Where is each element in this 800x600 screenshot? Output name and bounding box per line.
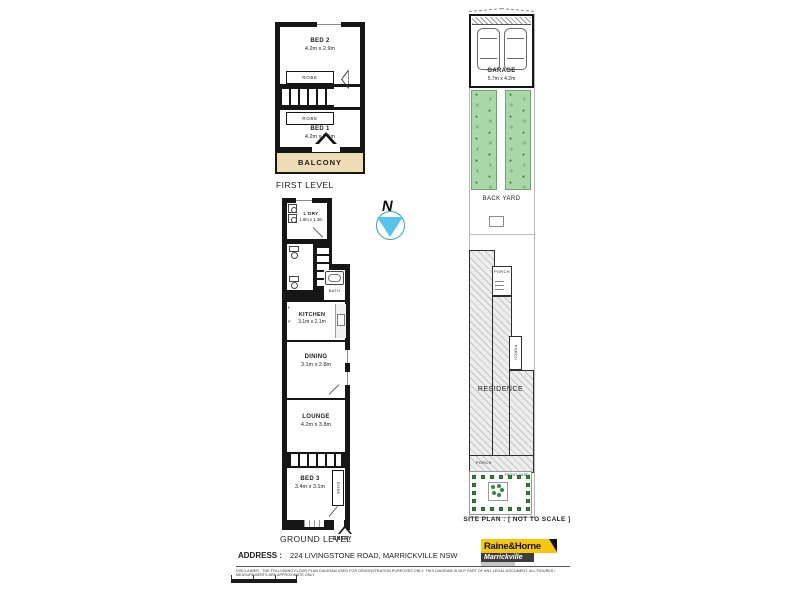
logo-corner-icon — [549, 539, 557, 552]
site-plan-caption: SITE PLAN : [ NOT TO SCALE ] — [452, 516, 582, 523]
lounge-room: LOUNGE 4.2m x 3.8m — [287, 400, 345, 452]
bed2-dims: 4.2m x 2.9m — [275, 46, 365, 53]
fridge-label: F — [288, 306, 291, 310]
dining-room: DINING 3.1m x 2.8m — [287, 342, 345, 398]
garden-bed-icon — [499, 507, 503, 511]
plant-icon: ● — [488, 131, 491, 136]
plant-icon: ✱ — [522, 98, 527, 104]
backyard-strip-right: ●✱✱●●✱✱●●✱✱●●✱✱●●✱ — [505, 90, 531, 190]
balcony-label: BALCONY — [298, 158, 342, 167]
plant-icon: ✱ — [475, 104, 480, 110]
plant-icon: ● — [522, 109, 525, 114]
ground-level-plan: L'DRY 1.8m x 1.3m BATH F P KITCHEN 3.1m … — [282, 198, 350, 530]
plant-icon: ✱ — [488, 98, 493, 104]
wc-room — [287, 244, 313, 290]
robe-top: ROBE — [286, 71, 334, 84]
garden-bed-icon — [526, 491, 530, 495]
plant-icon: ● — [475, 137, 478, 142]
residence-label: RESIDENCE — [469, 386, 532, 393]
bed3-dims: 3.4m x 3.1m — [287, 484, 333, 491]
laundry-label: L'DRY 1.8m x 1.3m — [295, 211, 327, 222]
plant-icon: ● — [475, 181, 478, 186]
window-icon — [296, 198, 312, 203]
lounge-label: LOUNGE 4.2m x 3.8m — [287, 414, 345, 429]
bed3-robe: ROBE — [332, 470, 344, 506]
plant-icon: ● — [509, 115, 512, 120]
garage-dims: 5.7m x 4.2m — [471, 76, 532, 83]
bed3-label: BED 3 3.4m x 3.1m — [287, 476, 333, 491]
plant-icon: ● — [509, 137, 512, 142]
plant-icon: ● — [509, 159, 512, 164]
plant-icon: ● — [475, 159, 478, 164]
dining-name: DINING — [287, 354, 345, 362]
address-row: ADDRESS : 224 LIVINGSTONE ROAD, MARRICKV… — [238, 551, 457, 560]
front-yard: FRONT YARD — [469, 471, 532, 515]
logo-office-text: Marrickville — [481, 554, 523, 561]
plan-cutout — [332, 198, 350, 264]
kitchen-label: KITCHEN 3.1m x 2.1m — [287, 312, 337, 326]
door-icon — [329, 506, 338, 517]
scale-bar — [231, 574, 297, 584]
backyard-strip-left: ●✱✱●●✱✱●●✱✱●●✱✱●●✱ — [471, 90, 497, 190]
roller-door-icon — [472, 17, 531, 25]
front-porch-label: PORCH — [476, 461, 492, 465]
plant-icon: ✱ — [509, 170, 514, 176]
plant-icon: ✱ — [522, 164, 527, 170]
window-icon — [317, 22, 341, 27]
plant-icon: ● — [475, 93, 478, 98]
garden-bed-icon — [472, 491, 476, 495]
plant-icon: ✱ — [475, 170, 480, 176]
laundry-dims: 1.8m x 1.3m — [295, 217, 327, 222]
stairs-ground-level-lower — [289, 452, 341, 468]
garden-pot — [488, 482, 508, 501]
garden-bed-icon — [490, 475, 494, 479]
logo-office-bar: Marrickville — [481, 553, 534, 562]
compass: N — [374, 199, 408, 243]
door-icon — [329, 384, 340, 395]
balcony: BALCONY — [275, 152, 365, 174]
bed3-name: BED 3 — [287, 476, 333, 484]
garden-bed-icon — [508, 507, 512, 511]
clothesline-icon — [489, 216, 504, 227]
first-level-caption: FIRST LEVEL — [276, 180, 334, 190]
plant-icon: ✱ — [488, 120, 493, 126]
garage-roof-line — [501, 8, 534, 12]
shrub-icon — [500, 488, 504, 492]
fireplace-icon — [304, 520, 324, 527]
laundry-room: L'DRY 1.8m x 1.3m — [287, 203, 327, 239]
plant-icon: ● — [488, 109, 491, 114]
bed3-room: BED 3 3.4m x 3.1m ROBE — [287, 468, 345, 520]
garden-bed-icon — [472, 499, 476, 503]
dining-dims: 3.1m x 2.8m — [287, 362, 345, 369]
agency-logo: Raine&Horne Marrickville — [481, 539, 557, 566]
garden-bed-icon — [526, 475, 530, 479]
residence-body — [509, 370, 534, 457]
plant-icon: ✱ — [475, 126, 480, 132]
garden-bed-icon — [517, 475, 521, 479]
logo-brand-text: Raine&Horne — [481, 541, 541, 552]
garage: GARAGE 5.7m x 4.2m — [469, 14, 534, 88]
plant-icon: ● — [488, 175, 491, 180]
garden-bed-icon — [490, 507, 494, 511]
plant-icon: ● — [509, 181, 512, 186]
plant-icon: ✱ — [488, 142, 493, 148]
plant-icon: ● — [509, 93, 512, 98]
plant-icon: ✱ — [475, 148, 480, 154]
garden-bed-icon — [508, 475, 512, 479]
garden-bed-icon — [472, 507, 476, 511]
side-porch-label: PORCH — [514, 345, 518, 360]
garden-bed-icon — [472, 475, 476, 479]
first-level-plan: BED 2 4.2m x 2.9m ◁ ROBE ROBE BED 1 4.2m… — [275, 22, 365, 152]
stair-wall — [280, 107, 360, 110]
plant-icon: ● — [522, 153, 525, 158]
logo-brand-bar: Raine&Horne — [481, 539, 557, 553]
window-icon — [345, 372, 350, 385]
lounge-name: LOUNGE — [287, 414, 345, 422]
robe-bottom: ROBE — [286, 112, 334, 125]
kitchen-room: F P KITCHEN 3.1m x 2.1m — [287, 302, 345, 340]
plant-icon: ● — [475, 115, 478, 120]
garden-bed-icon — [481, 475, 485, 479]
kitchen-dims: 3.1m x 2.1m — [287, 319, 337, 326]
compass-needle-icon — [377, 217, 403, 237]
plant-icon: ● — [522, 131, 525, 136]
plant-icon: ✱ — [522, 142, 527, 148]
plant-icon: ✱ — [509, 126, 514, 132]
plant-icon: ✱ — [509, 148, 514, 154]
car-icon — [477, 28, 500, 70]
garden-bed-icon — [499, 475, 503, 479]
door-icon: ◁ — [341, 65, 349, 94]
garden-bed-icon — [472, 483, 476, 487]
lounge-dims: 4.2m x 3.8m — [287, 422, 345, 429]
bath-label: BATH — [324, 289, 345, 293]
plant-icon: ✱ — [488, 164, 493, 170]
bed3-robe-label: ROBE — [336, 482, 340, 495]
door-icon — [313, 227, 324, 238]
scale-bar-rule — [231, 579, 297, 583]
shrub-icon — [491, 485, 495, 489]
side-porch: PORCH — [509, 336, 522, 370]
plant-icon: ✱ — [522, 120, 527, 126]
garden-bed-icon — [526, 507, 530, 511]
kitchen-name: KITCHEN — [287, 312, 337, 319]
garden-bed-icon — [526, 483, 530, 487]
garden-bed-icon — [526, 499, 530, 503]
garage-name: GARAGE — [471, 68, 532, 76]
garden-bed-icon — [517, 507, 521, 511]
shrub-icon — [497, 493, 501, 497]
sink-icon — [337, 314, 345, 326]
bed2-label: BED 2 4.2m x 2.9m — [275, 38, 365, 53]
toilet-icon — [289, 246, 299, 252]
address-label: ADDRESS : — [238, 551, 282, 560]
footer-divider — [236, 566, 570, 567]
bathtub-icon — [325, 271, 344, 285]
dining-label: DINING 3.1m x 2.8m — [287, 354, 345, 369]
fence-line — [469, 234, 534, 235]
garden-bed-icon — [481, 507, 485, 511]
steps-icon — [495, 281, 504, 292]
bed2-name: BED 2 — [275, 38, 365, 46]
toilet-icon — [289, 276, 299, 282]
plant-icon: ✱ — [509, 104, 514, 110]
plant-icon: ● — [522, 175, 525, 180]
rear-porch-label: PORCH — [493, 270, 511, 274]
bath-room: BATH — [324, 270, 345, 300]
plant-icon: ✱ — [488, 186, 493, 192]
plant-icon: ✱ — [522, 186, 527, 192]
address-value: 224 LIVINGSTONE ROAD, MARRICKVILLE NSW — [290, 551, 457, 560]
window-icon — [345, 350, 350, 363]
logo-gray-strip — [481, 562, 515, 566]
garage-roof-line — [469, 8, 502, 12]
shrub-icon — [492, 491, 496, 495]
rear-porch: PORCH — [492, 266, 512, 296]
backyard-caption: BACK YARD — [469, 196, 534, 202]
ground-level-caption: GROUND LEVEL — [280, 534, 351, 544]
car-icon — [504, 28, 527, 70]
stairs-first-level — [280, 87, 334, 107]
door-swing-icon-inner — [318, 136, 334, 145]
plant-icon: ● — [488, 153, 491, 158]
garage-label: GARAGE 5.7m x 4.2m — [471, 68, 532, 82]
balcony-door-gap — [312, 144, 340, 152]
